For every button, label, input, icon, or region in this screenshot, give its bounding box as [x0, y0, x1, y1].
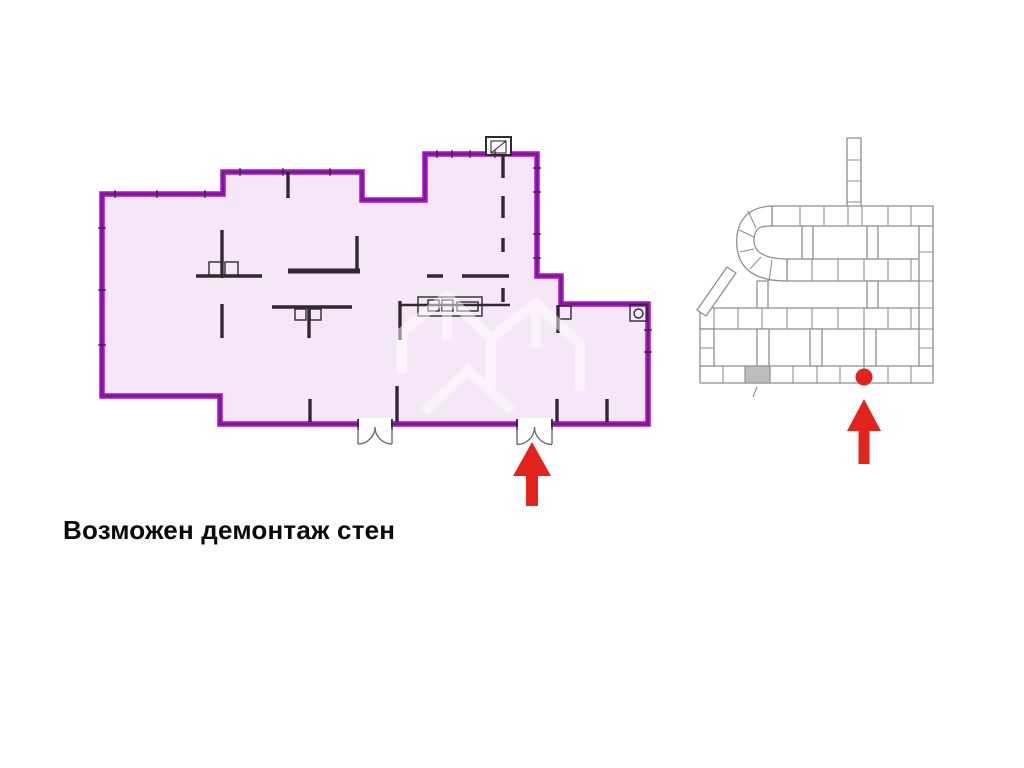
- entrance-arrow-icon: [513, 442, 551, 506]
- location-arrow: [847, 399, 881, 464]
- floor-plan: [98, 137, 652, 445]
- drawing-layer: [0, 0, 1024, 768]
- caption: Возможен демонтаж стен: [63, 515, 395, 546]
- location-dot: [856, 369, 873, 386]
- shaft-icon: [486, 137, 511, 155]
- site-plan: [697, 138, 933, 397]
- screenshot-canvas: Возможен демонтаж стен: [0, 0, 1024, 768]
- site-tower: [847, 138, 861, 208]
- site-shaded-block: [745, 366, 770, 383]
